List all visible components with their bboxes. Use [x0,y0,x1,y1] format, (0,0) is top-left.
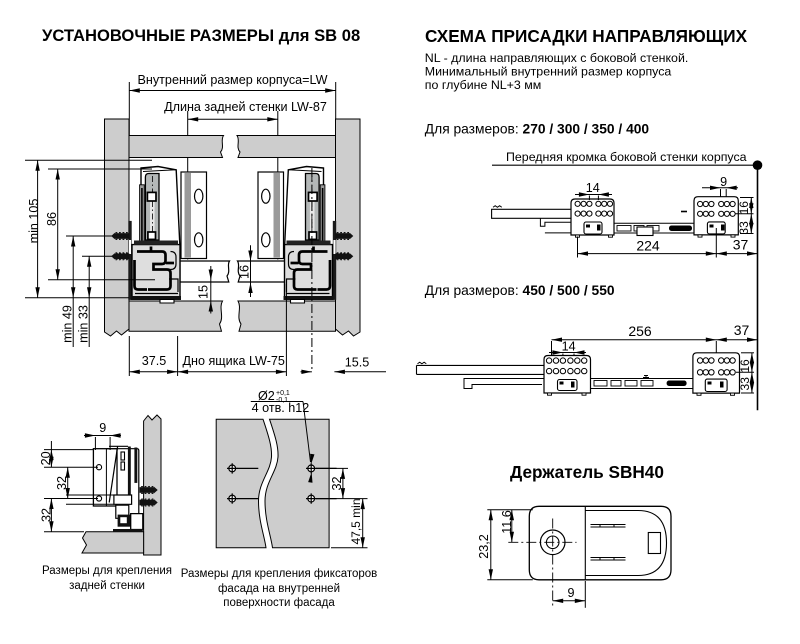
svg-text:Внутренний размер корпуса=LW: Внутренний размер корпуса=LW [138,73,328,87]
svg-text:14: 14 [586,181,600,195]
svg-text:23,2: 23,2 [477,534,491,559]
svg-text:Размеры для крепления фиксатор: Размеры для крепления фиксаторов [181,568,378,580]
svg-text:224: 224 [636,238,660,254]
svg-text:15: 15 [197,285,211,299]
svg-text:20: 20 [39,451,53,465]
svg-text:47,5 min: 47,5 min [349,498,363,544]
svg-text:+0,1: +0,1 [276,390,290,397]
svg-text:256: 256 [628,323,652,339]
svg-text:16: 16 [738,359,752,373]
svg-text:9: 9 [567,586,574,600]
svg-text:86: 86 [45,212,59,226]
svg-text:4 отв. h12: 4 отв. h12 [252,401,310,415]
svg-text:33: 33 [738,377,752,391]
svg-text:16: 16 [737,201,751,215]
svg-text:9: 9 [99,421,106,435]
svg-text:задней стенки: задней стенки [69,580,145,592]
svg-text:32: 32 [55,476,69,490]
svg-text:min 33: min 33 [77,305,91,343]
svg-text:Для размеров: 450 / 500 / 550: Для размеров: 450 / 500 / 550 [425,283,615,298]
svg-text:Держатель SBH40: Держатель SBH40 [510,462,664,482]
svg-text:32: 32 [40,508,54,522]
svg-text:по глубине NL+3 мм: по глубине NL+3 мм [425,78,542,92]
svg-text:min 105: min 105 [27,199,41,244]
svg-text:11,6: 11,6 [500,510,514,534]
svg-text:Размеры для крепления: Размеры для крепления [42,565,172,577]
svg-text:14: 14 [562,340,576,354]
svg-text:15.5: 15.5 [345,356,370,370]
svg-text:33: 33 [737,221,751,235]
svg-text:Минимальный внутренний размер: Минимальный внутренний размер корпуса [425,65,672,79]
svg-text:32: 32 [330,476,344,490]
svg-text:поверхности фасада: поверхности фасада [223,597,335,609]
svg-text:16: 16 [238,265,252,279]
svg-text:Передняя кромка боковой стенки: Передняя кромка боковой стенки корпуса [506,150,747,164]
svg-text:Дно ящика LW-75: Дно ящика LW-75 [183,354,285,368]
svg-text:фасада на внутренней: фасада на внутренней [218,583,340,595]
svg-text:37.5: 37.5 [142,354,167,368]
svg-text:Для размеров: 270 / 300 / 350: Для размеров: 270 / 300 / 350 / 400 [425,122,650,137]
svg-text:min 49: min 49 [61,305,75,343]
svg-text:УСТАНОВОЧНЫЕ РАЗМЕРЫ для SB 08: УСТАНОВОЧНЫЕ РАЗМЕРЫ для SB 08 [42,26,360,45]
svg-text:37: 37 [734,322,750,338]
svg-text:9: 9 [720,175,727,189]
svg-text:Длина задней стенки LW-87: Длина задней стенки LW-87 [164,100,327,114]
svg-text:NL - длина направляющих с боко: NL - длина направляющих с боковой стенко… [425,51,689,65]
svg-text:СХЕМА ПРИСАДКИ НАПРАВЛЯЮЩИХ: СХЕМА ПРИСАДКИ НАПРАВЛЯЮЩИХ [425,26,748,46]
svg-text:37: 37 [733,237,749,253]
